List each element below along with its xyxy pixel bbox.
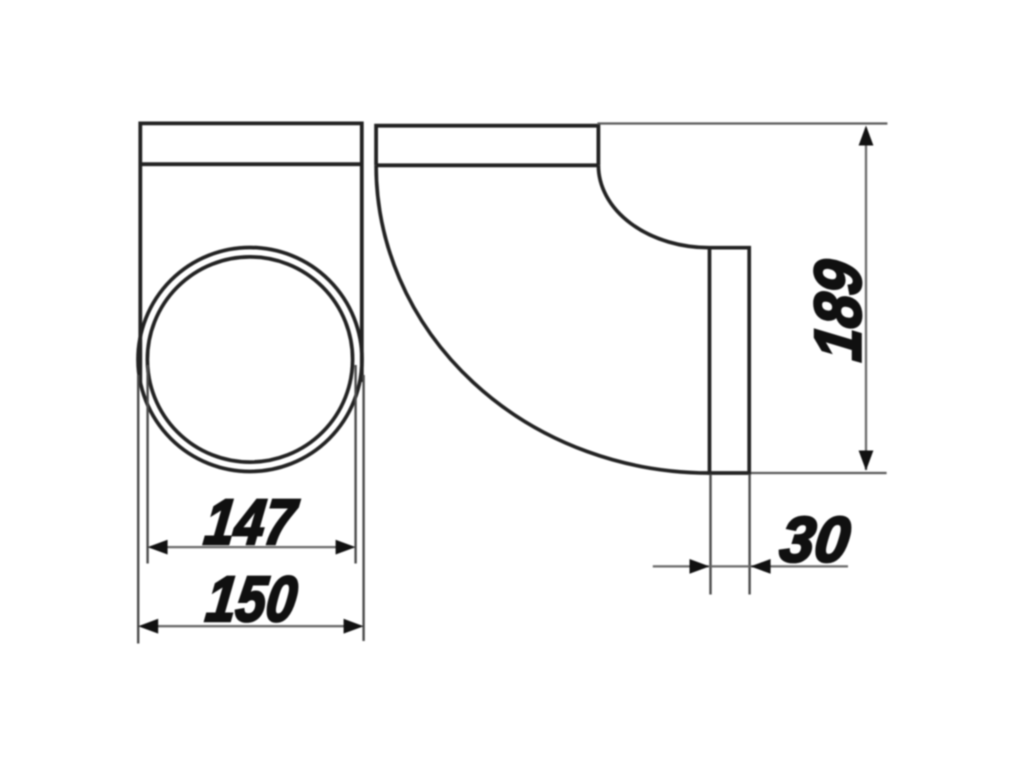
svg-text:30: 30 — [776, 505, 853, 576]
svg-text:147: 147 — [201, 486, 302, 558]
svg-text:189: 189 — [802, 256, 875, 364]
svg-text:150: 150 — [202, 563, 301, 635]
